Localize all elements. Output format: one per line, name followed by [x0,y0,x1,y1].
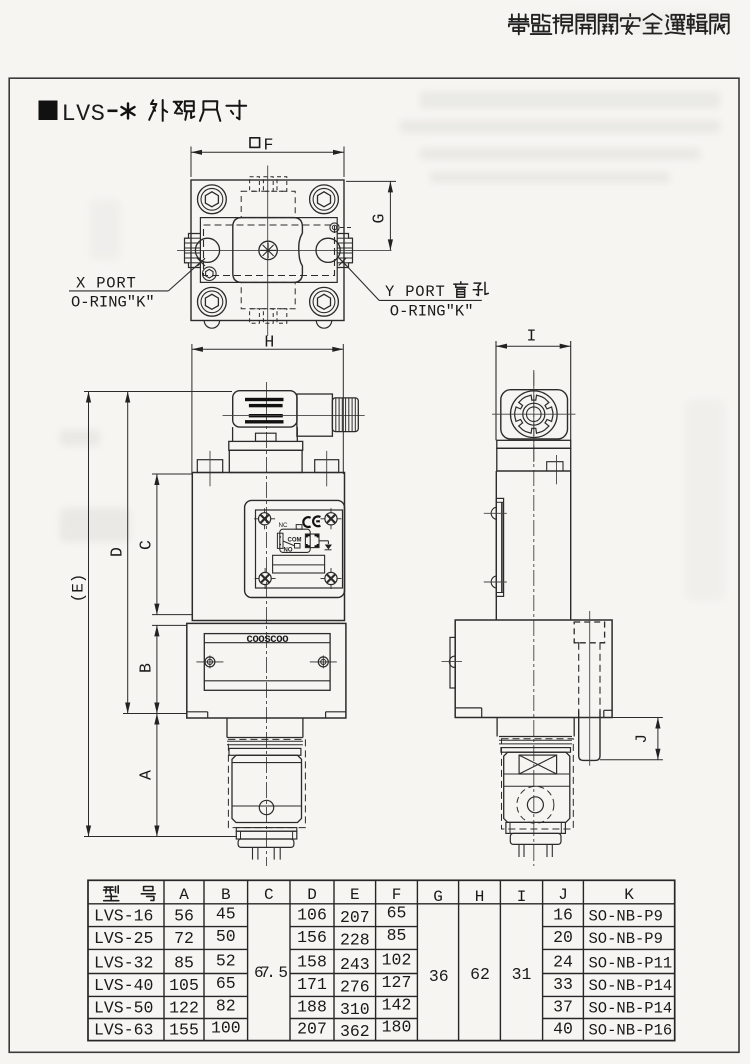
svg-text:LVS-25: LVS-25 [94,929,153,948]
svg-text:K: K [624,886,634,904]
svg-text:122: 122 [169,998,199,1017]
svg-text:56: 56 [174,906,194,925]
svg-text:SO-NB-P14: SO-NB-P14 [589,999,673,1017]
svg-text:31: 31 [512,965,532,984]
svg-text:37: 37 [553,997,573,1016]
svg-text:D: D [108,547,127,557]
svg-text:362: 362 [340,1022,370,1041]
svg-text:24: 24 [553,952,573,971]
svg-text:G: G [433,888,443,906]
svg-text:156: 156 [297,928,327,947]
svg-text:O-RING"K": O-RING"K" [71,294,155,312]
svg-text:52: 52 [216,951,236,970]
svg-text:(E): (E) [70,574,88,603]
svg-text:LVS-63: LVS-63 [94,1020,153,1039]
svg-text:243: 243 [340,955,370,974]
svg-text:LVS-40: LVS-40 [94,976,153,995]
svg-text:SO-NB-P9: SO-NB-P9 [589,907,663,925]
svg-text:B: B [137,663,156,673]
svg-text:82: 82 [216,996,236,1015]
svg-text:40: 40 [553,1019,573,1038]
svg-text:J: J [558,886,568,904]
svg-text:NC: NC [279,522,288,529]
svg-text:100: 100 [211,1018,241,1037]
svg-text:D: D [307,886,317,904]
svg-text:50: 50 [216,927,236,946]
svg-text:171: 171 [297,975,327,994]
svg-text:Y PORT: Y PORT [385,283,446,301]
svg-text:SO-NB-P9: SO-NB-P9 [589,930,663,948]
svg-text:36: 36 [429,967,449,986]
svg-text:67. 5: 67. 5 [254,964,288,982]
svg-text:65: 65 [216,974,236,993]
svg-text:85: 85 [174,953,194,972]
svg-text:127: 127 [382,973,412,992]
svg-text:F: F [264,136,274,155]
svg-text:SO-NB-P16: SO-NB-P16 [589,1021,673,1039]
svg-text:158: 158 [297,952,327,971]
svg-text:72: 72 [174,929,194,948]
svg-text:X PORT: X PORT [76,275,137,293]
svg-text:142: 142 [382,995,412,1014]
svg-text:H: H [475,888,485,906]
svg-text:H: H [264,332,274,351]
svg-text:155: 155 [169,1020,199,1039]
svg-text:105: 105 [169,976,199,995]
svg-text:207: 207 [340,908,370,927]
svg-text:20: 20 [553,928,573,947]
svg-text:I: I [517,888,527,906]
svg-text:O-RING"K": O-RING"K" [390,303,474,321]
svg-text:E: E [350,886,360,904]
svg-text:COOSCOO: COOSCOO [247,634,289,646]
svg-text:LVS: LVS [62,101,106,128]
svg-text:180: 180 [382,1017,412,1036]
svg-text:C: C [137,540,156,550]
svg-text:SO-NB-P14: SO-NB-P14 [589,977,673,995]
svg-text:SO-NB-P11: SO-NB-P11 [589,954,673,972]
svg-text:F: F [392,886,402,904]
svg-text:102: 102 [382,950,412,969]
svg-text:B: B [221,886,231,904]
svg-text:A: A [179,886,189,904]
svg-text:45: 45 [216,904,236,923]
svg-text:C: C [264,886,274,904]
svg-text:228: 228 [340,931,370,950]
svg-text:LVS-32: LVS-32 [94,953,153,972]
svg-text:65: 65 [387,903,407,922]
svg-text:106: 106 [297,905,327,924]
svg-text:16: 16 [553,905,573,924]
svg-text:33: 33 [553,975,573,994]
svg-text:310: 310 [340,1000,370,1019]
svg-text:207: 207 [297,1019,327,1038]
svg-text:COM: COM [288,538,302,544]
svg-text:J: J [633,734,651,744]
svg-text:G: G [370,214,389,224]
svg-text:A: A [137,770,156,780]
svg-text:I: I [527,327,537,346]
svg-text:85: 85 [387,926,407,945]
svg-text:LVS-16: LVS-16 [94,906,153,925]
svg-text:276: 276 [340,978,370,997]
svg-text:LVS-50: LVS-50 [94,998,153,1017]
svg-text:NO: NO [284,548,293,554]
svg-text:188: 188 [297,997,327,1016]
svg-text:62: 62 [470,965,490,984]
